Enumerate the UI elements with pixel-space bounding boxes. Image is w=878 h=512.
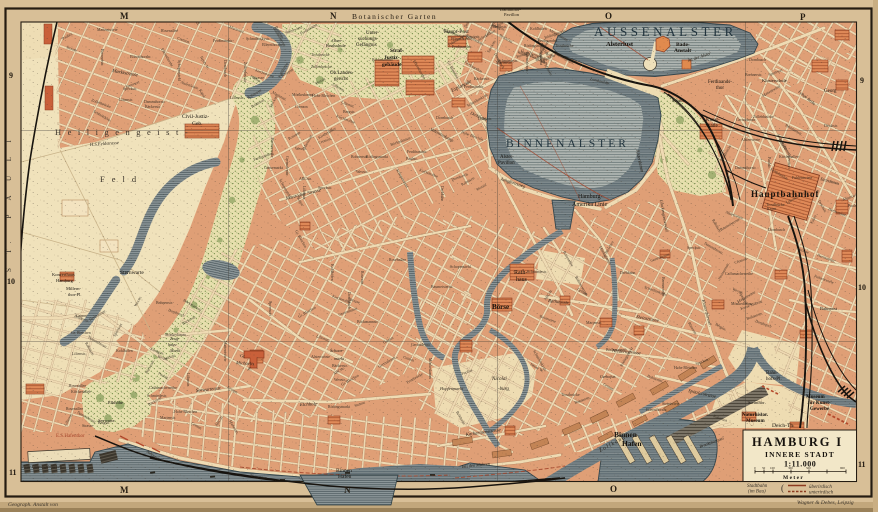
svg-text:(im Bau): (im Bau) xyxy=(748,490,766,495)
svg-text:Rath-: Rath- xyxy=(514,270,527,276)
svg-text:Feld: Feld xyxy=(100,174,143,184)
svg-text:Börse: Börse xyxy=(492,303,509,311)
svg-text:M: M xyxy=(120,11,129,21)
svg-text:für Kunst-: für Kunst- xyxy=(808,401,831,406)
svg-text:haus-: haus- xyxy=(168,342,178,347)
svg-text:unterirdisch: unterirdisch xyxy=(809,491,834,496)
svg-text:Hamburg: Hamburg xyxy=(56,278,74,283)
svg-text:Pavillon: Pavillon xyxy=(498,161,515,166)
svg-text:BINNENALSTER: BINNENALSTER xyxy=(506,138,629,150)
svg-text:Nicolai: Nicolai xyxy=(491,377,507,382)
svg-text:Steinthor: Steinthor xyxy=(748,400,765,405)
svg-text:gebäude: gebäude xyxy=(382,62,402,68)
svg-text:11: 11 xyxy=(858,460,866,469)
svg-text:9: 9 xyxy=(9,71,13,80)
svg-text:Hamburg-: Hamburg- xyxy=(578,194,603,200)
svg-text:Wagner & Debes, Leipzig: Wagner & Debes, Leipzig xyxy=(797,500,854,506)
svg-text:M: M xyxy=(120,485,129,495)
svg-text:Hopfenmarkt: Hopfenmarkt xyxy=(439,386,464,391)
svg-text:E.S.Hafenthor: E.S.Hafenthor xyxy=(56,434,85,439)
svg-text:O: O xyxy=(605,11,612,21)
svg-text:Millern-: Millern- xyxy=(66,286,81,291)
svg-text:Gefängnis: Gefängnis xyxy=(356,43,377,48)
svg-text:(: ( xyxy=(781,483,784,493)
svg-text:Bahn-: Bahn- xyxy=(766,371,779,376)
svg-text:P: P xyxy=(800,12,806,22)
svg-text:Georg: Georg xyxy=(824,89,837,94)
svg-text:überirdisch: überirdisch xyxy=(809,485,832,490)
svg-text:Elbhöhe: Elbhöhe xyxy=(108,400,123,405)
svg-text:Alsterlust: Alsterlust xyxy=(606,41,634,48)
svg-text:11: 11 xyxy=(9,468,17,477)
svg-text:Klosterschule: Klosterschule xyxy=(762,78,787,83)
svg-text:Ferdinands-: Ferdinands- xyxy=(708,80,732,85)
svg-text:Seewarte: Seewarte xyxy=(98,418,115,423)
svg-text:Museum: Museum xyxy=(746,419,765,424)
svg-text:Naturhistor.: Naturhistor. xyxy=(742,413,769,418)
svg-text:100: 100 xyxy=(770,466,775,470)
svg-text:O: O xyxy=(610,484,617,494)
svg-text:Markt: Markt xyxy=(169,348,181,353)
svg-text:Realschule: Realschule xyxy=(326,43,346,48)
svg-text:Heiligengeist-: Heiligengeist- xyxy=(55,127,194,137)
svg-text:Ob.Landes-: Ob.Landes- xyxy=(330,71,354,76)
svg-text:Schiller: Schiller xyxy=(672,98,686,103)
svg-text:Schaar-: Schaar- xyxy=(330,348,344,353)
svg-text:Kunst-: Kunst- xyxy=(706,118,720,123)
svg-text:Amerika Linie: Amerika Linie xyxy=(572,202,607,208)
svg-text:K.: K. xyxy=(247,366,252,371)
svg-text:INNERE STADT: INNERE STADT xyxy=(765,450,835,459)
svg-text:Gewerbe: Gewerbe xyxy=(810,407,830,412)
svg-text:HAMBURG I: HAMBURG I xyxy=(752,435,843,449)
svg-text:Museum: Museum xyxy=(806,395,825,400)
svg-text:Geb.: Geb. xyxy=(192,121,203,127)
svg-text:9: 9 xyxy=(860,76,864,85)
svg-text:Hafen: Hafen xyxy=(338,473,352,480)
svg-text:Gr.: Gr. xyxy=(240,353,246,358)
svg-text:thor: thor xyxy=(716,86,724,91)
svg-text:10: 10 xyxy=(7,277,15,286)
svg-text:300: 300 xyxy=(788,466,793,470)
svg-text:Zeug-: Zeug- xyxy=(170,336,180,341)
svg-text:10: 10 xyxy=(858,283,866,292)
svg-text:markt: markt xyxy=(334,356,345,361)
svg-text:hofs-Pl.: hofs-Pl. xyxy=(766,377,782,382)
svg-text:Geograph. Anstalt von: Geograph. Anstalt von xyxy=(8,502,58,508)
svg-text:Alster-: Alster- xyxy=(500,155,514,160)
svg-text:N: N xyxy=(330,11,337,21)
svg-text:50: 50 xyxy=(762,466,766,470)
svg-text:Haupt-Post: Haupt-Post xyxy=(444,29,469,35)
svg-text:N: N xyxy=(344,485,351,495)
svg-text:500: 500 xyxy=(806,466,811,470)
svg-text:900: 900 xyxy=(840,466,845,470)
svg-text:Eichholz: Eichholz xyxy=(299,402,317,408)
svg-text:Neue Landungsbrücken: Neue Landungsbrücken xyxy=(21,464,62,469)
svg-text:haus: haus xyxy=(516,277,528,283)
svg-text:Deich-Th.: Deich-Th. xyxy=(772,423,795,429)
svg-text:thor-Pl.: thor-Pl. xyxy=(68,292,82,297)
svg-text:Pavillon: Pavillon xyxy=(504,12,520,17)
svg-text:M e t e r: M e t e r xyxy=(783,475,803,481)
svg-text:Gerhofstr.: Gerhofstr. xyxy=(600,374,616,379)
svg-text:Justiz-: Justiz- xyxy=(384,55,400,61)
svg-text:Bahnpost: Bahnpost xyxy=(820,306,838,311)
svg-text:suchungs-: suchungs- xyxy=(358,37,379,42)
svg-text:S T. P A U L I: S T. P A U L I xyxy=(5,134,13,272)
svg-text:Stadtbahn: Stadtbahn xyxy=(747,484,768,489)
svg-text:-burg: -burg xyxy=(498,387,509,392)
svg-text:Sternwarte: Sternwarte xyxy=(120,270,144,276)
svg-text:Hauptbahnhof: Hauptbahnhof xyxy=(751,189,820,199)
svg-text:Botanischer Garten: Botanischer Garten xyxy=(352,12,437,21)
svg-text:AUSSENALSTER: AUSSENALSTER xyxy=(594,24,737,39)
svg-text:Unter-: Unter- xyxy=(366,31,379,36)
svg-text:Anstalt: Anstalt xyxy=(674,48,691,54)
svg-text:Konzerthaus: Konzerthaus xyxy=(52,272,75,277)
svg-text:Civil-Justiz-: Civil-Justiz- xyxy=(182,114,209,120)
svg-text:halle: halle xyxy=(708,124,718,129)
svg-text:Straf-: Straf- xyxy=(390,48,404,54)
svg-text:gericht: gericht xyxy=(334,77,348,82)
